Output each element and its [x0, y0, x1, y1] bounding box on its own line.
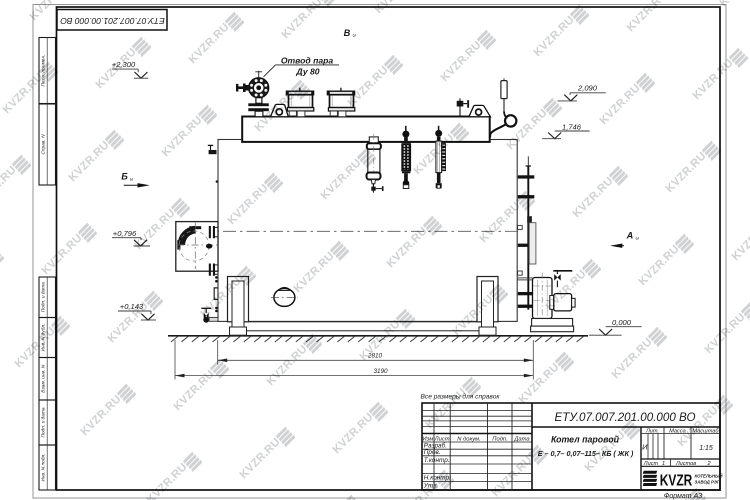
- svg-text:N докум.: N докум.: [457, 436, 480, 442]
- svg-text:И: И: [642, 443, 648, 452]
- svg-text:Е – 0,7– 0,07–115– КБ ( ЖК ): Е – 0,7– 0,07–115– КБ ( ЖК ): [538, 449, 634, 458]
- svg-text:Инв. N подл.: Инв. N подл.: [40, 453, 46, 481]
- svg-text:+0,796: +0,796: [113, 229, 137, 238]
- svg-text:Лит.: Лит.: [645, 428, 659, 434]
- svg-text:Взам. инв. N: Взам. инв. N: [40, 364, 46, 392]
- svg-text:Ду 80: Ду 80: [295, 67, 319, 77]
- svg-text:0,000: 0,000: [612, 318, 632, 327]
- svg-text:Дата: Дата: [513, 436, 530, 442]
- svg-text:3190: 3190: [373, 368, 388, 375]
- svg-text:Подп.: Подп.: [492, 436, 507, 442]
- svg-text:Т.контр.: Т.контр.: [424, 457, 450, 464]
- svg-text:КОТЕЛЬНЫЙ: КОТЕЛЬНЫЙ: [695, 473, 724, 478]
- svg-text:ЕТУ.07.007.201.00.000 ВО: ЕТУ.07.007.201.00.000 ВО: [60, 16, 165, 26]
- svg-text:2,090: 2,090: [577, 84, 598, 93]
- svg-text:ω: ω: [353, 33, 357, 38]
- svg-text:1: 1: [662, 461, 665, 467]
- svg-text:Лист: Лист: [643, 461, 659, 467]
- svg-text:Справ. N: Справ. N: [40, 134, 46, 155]
- svg-text:Подп. и дата: Подп. и дата: [40, 407, 46, 437]
- svg-text:Б: Б: [121, 172, 128, 182]
- svg-text:1:15: 1:15: [699, 445, 713, 452]
- svg-text:1,746: 1,746: [562, 122, 582, 131]
- svg-text:ЗАВОД РЭП: ЗАВОД РЭП: [695, 479, 721, 484]
- svg-text:В: В: [344, 28, 351, 38]
- svg-text:Подп. и дата: Подп. и дата: [40, 282, 46, 312]
- svg-text:Листов: Листов: [675, 461, 696, 467]
- svg-text:А: А: [626, 231, 634, 241]
- svg-text:Изм: Изм: [423, 436, 434, 442]
- svg-text:ω: ω: [636, 235, 640, 240]
- svg-text:Отвод пара: Отвод пара: [281, 56, 334, 66]
- svg-text:ЕТУ.07.007.201.00.000 ВО: ЕТУ.07.007.201.00.000 ВО: [555, 411, 696, 424]
- svg-text:Лист: Лист: [434, 436, 450, 442]
- svg-text:Пров.: Пров.: [424, 449, 441, 456]
- svg-text:KVZR: KVZR: [660, 472, 693, 489]
- svg-text:ω: ω: [130, 177, 134, 182]
